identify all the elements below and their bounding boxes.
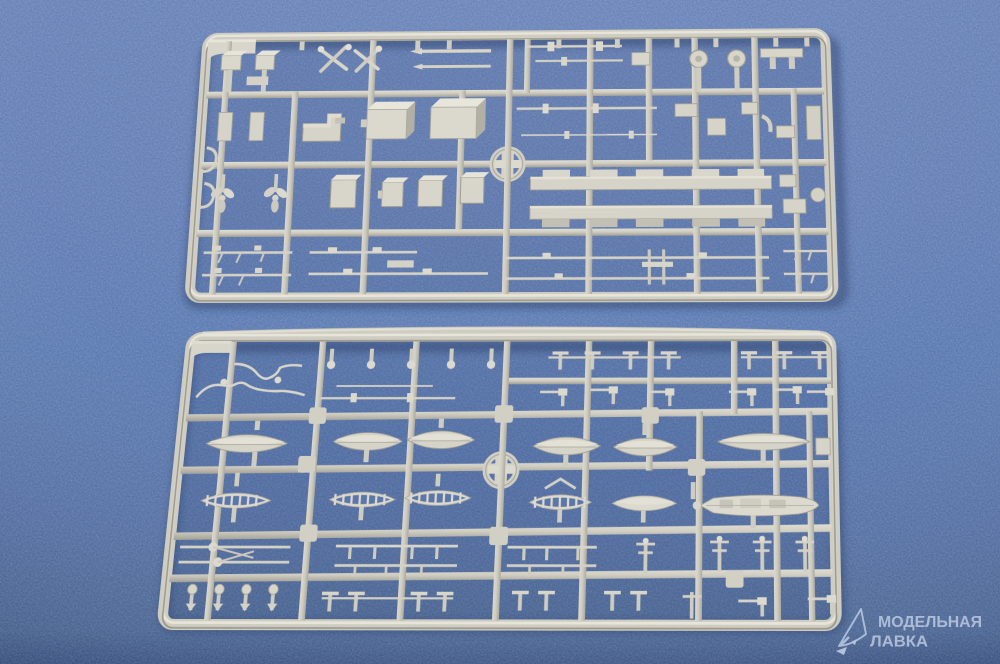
- svg-text:МОДЕЛЬНАЯ: МОДЕЛЬНАЯ: [878, 614, 982, 631]
- svg-text:ЛАВКА: ЛАВКА: [870, 634, 928, 651]
